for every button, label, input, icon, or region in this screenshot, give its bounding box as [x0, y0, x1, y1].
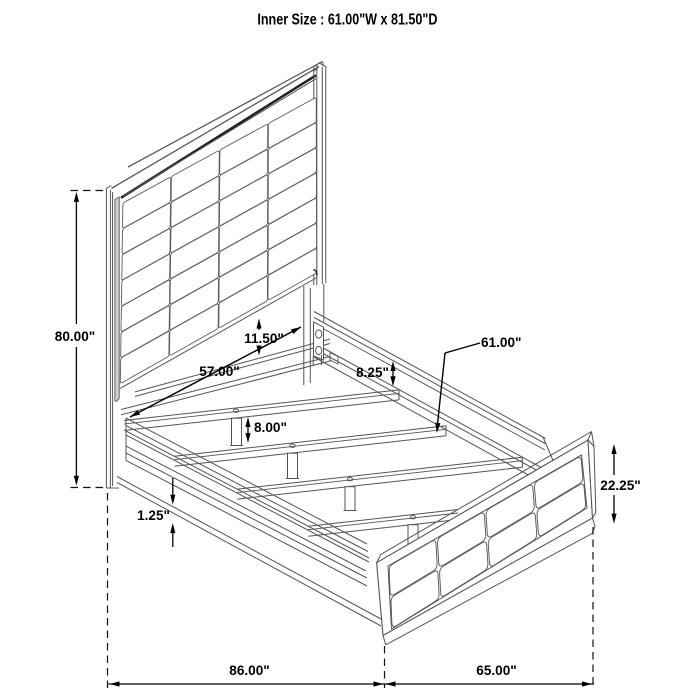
svg-text:11.50": 11.50"	[244, 331, 284, 346]
svg-text:Inner Size : 61.00"W x 81.50"D: Inner Size : 61.00"W x 81.50"D	[257, 12, 437, 29]
svg-text:1.25": 1.25"	[137, 508, 170, 523]
svg-text:61.00": 61.00"	[481, 335, 521, 350]
svg-text:8.00": 8.00"	[254, 420, 287, 435]
svg-text:65.00": 65.00"	[476, 663, 516, 678]
svg-text:57.00": 57.00"	[199, 364, 239, 379]
svg-text:22.25": 22.25"	[600, 478, 640, 493]
svg-text:80.00": 80.00"	[55, 329, 95, 344]
svg-text:8.25": 8.25"	[356, 365, 389, 380]
svg-text:86.00": 86.00"	[229, 663, 269, 678]
